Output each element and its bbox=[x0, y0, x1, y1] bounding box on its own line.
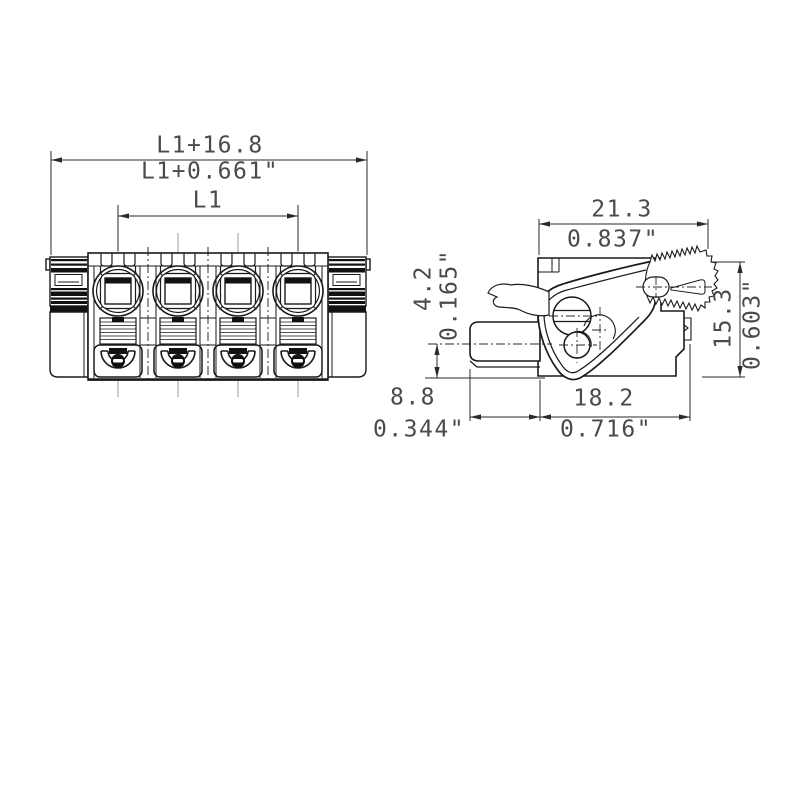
dim-side-depth-mm: 18.2 bbox=[573, 388, 634, 411]
dim-side-height-in: 0.603" bbox=[742, 278, 765, 370]
flange-window bbox=[333, 275, 360, 286]
dim-side-depth-in: 0.716" bbox=[560, 419, 652, 442]
dim-front-overall-in: L1+0.661" bbox=[141, 161, 279, 184]
dim-side-width-mm: 21.3 bbox=[591, 199, 652, 222]
pawl-hook bbox=[488, 284, 549, 316]
dim-side-protrusion-in: 0.344" bbox=[373, 419, 465, 442]
latch-tab bbox=[684, 318, 691, 340]
front-view-drawing bbox=[46, 233, 370, 397]
plug-barrel bbox=[470, 322, 540, 361]
dim-side-width-in: 0.837" bbox=[567, 229, 659, 252]
dim-front-overall-mm: L1+16.8 bbox=[156, 135, 263, 158]
dim-side-offset-mm: 4.2 bbox=[413, 265, 436, 311]
flange-window bbox=[55, 275, 82, 286]
dim-side-offset-in: 0.165" bbox=[439, 249, 462, 341]
dim-side-protrusion-mm: 8.8 bbox=[390, 387, 436, 410]
technical-drawing-canvas: L1+16.8 L1+0.661" L1 21.3 0.837" 4.2 0.1… bbox=[0, 0, 800, 800]
side-view-drawing bbox=[428, 246, 718, 380]
left-flange bbox=[46, 257, 88, 377]
dim-side-height-mm: 15.3 bbox=[713, 287, 736, 348]
dim-front-pitch: L1 bbox=[193, 190, 224, 213]
right-flange bbox=[328, 257, 370, 377]
